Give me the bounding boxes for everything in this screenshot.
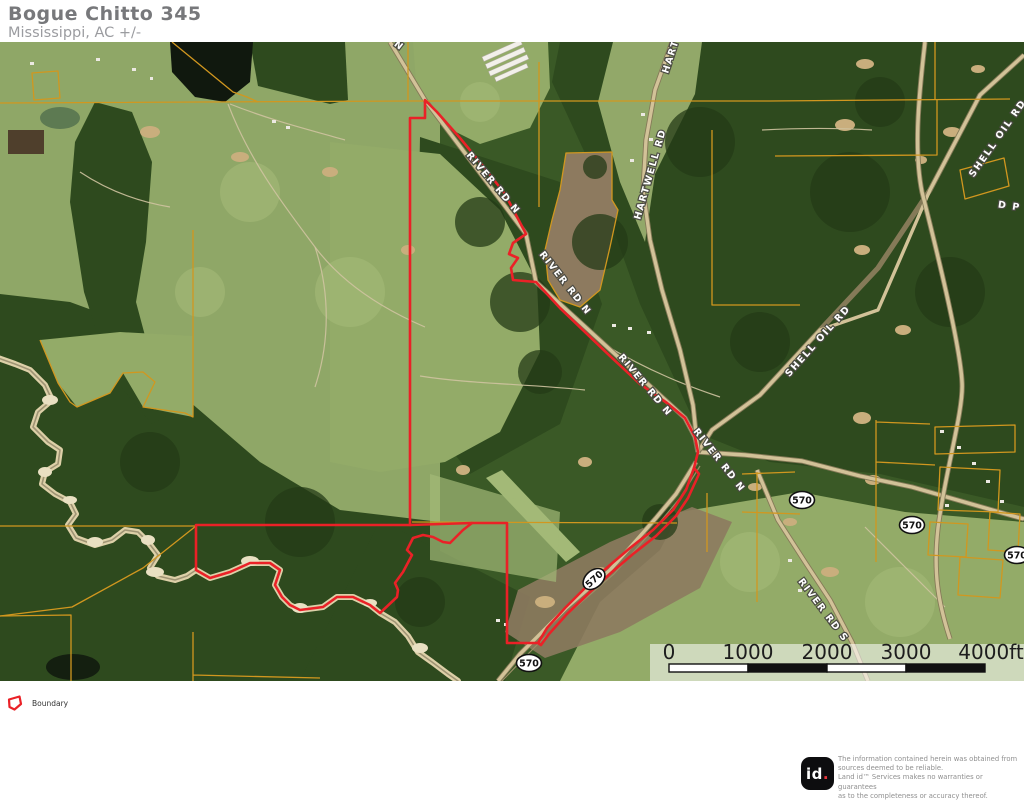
pond-southwest [46,654,100,680]
scale-bar: 0 1000 2000 3000 4000ft [650,640,1024,681]
boundary-legend-icon [7,695,23,712]
svg-text:570: 570 [1007,551,1024,562]
logo-dot: . [823,765,829,783]
plowed-field [8,130,44,154]
scale-label-1000: 1000 [723,640,774,664]
scale-label-3000: 3000 [881,640,932,664]
legend-item-boundary: Boundary [7,695,68,712]
page-title: Bogue Chitto 345 [8,3,202,25]
disclaimer: The information contained herein was obt… [838,755,1020,801]
shield-570-b: 570 [900,517,925,534]
map-svg: RIVER RD N RIVER RD N RIVER RD N RIVER R… [0,42,1024,681]
header: Bogue Chitto 345 Mississippi, AC +/- [0,0,1024,42]
legend-label: Boundary [32,699,68,708]
land-id-logo: id. [801,757,834,790]
shield-570-e: 570 [517,655,542,672]
shield-570-a: 570 [790,492,815,509]
pond-green [40,107,80,129]
svg-text:570: 570 [902,521,922,532]
scale-label-2000: 2000 [802,640,853,664]
disclaimer-line: The information contained herein was obt… [838,755,1020,764]
page-subtitle: Mississippi, AC +/- [8,25,141,41]
scale-label-0: 0 [663,640,676,664]
disclaimer-line: Land id™ Services makes no warranties or… [838,773,1020,791]
scale-label-4000ft: 4000ft [958,640,1024,664]
svg-text:570: 570 [519,659,539,670]
logo-text: id [806,765,823,783]
svg-text:570: 570 [792,496,812,507]
shield-570-c: 570 [1005,547,1024,564]
disclaimer-line: sources deemed to be reliable. [838,764,1020,773]
map-canvas[interactable]: RIVER RD N RIVER RD N RIVER RD N RIVER R… [0,42,1024,681]
disclaimer-line: as to the completeness or accuracy there… [838,792,1020,801]
